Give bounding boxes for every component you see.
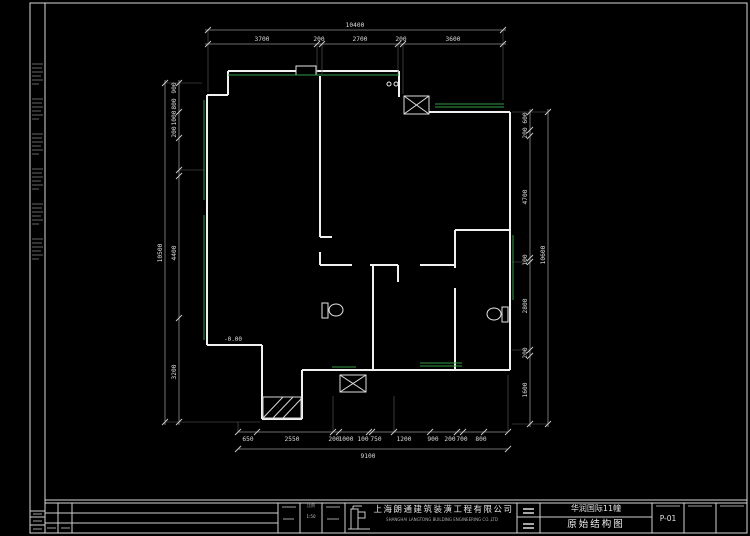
project-name: 华润国际11幢 [540,505,652,514]
dim-label: 200 [171,126,178,137]
dim-label: 4700 [522,189,529,204]
drawing-title: 原始结构图 [540,520,652,530]
window-lines [204,75,513,367]
dim-label: 900 [171,82,178,93]
dim-label: 3600 [446,36,461,43]
dim-label: -0.00 [224,336,242,343]
window-block [296,66,316,75]
dim-label: 2800 [522,298,529,313]
dim-label: 800 [475,436,486,443]
column-dots [387,82,398,86]
drawing-sheet: 3700200270020036001040065025502001000100… [0,0,750,536]
scale-value: 1:50 [300,515,322,519]
dim-label: 10500 [157,243,164,262]
dim-label: 900 [427,436,438,443]
company-name-cn: 上海朗通建筑装潢工程有限公司 [372,506,515,515]
registration-marks [523,509,534,528]
company-logo [348,506,370,529]
dim-label: 100 [357,436,368,443]
dim-label: 4400 [171,245,178,260]
dim-label: 200 [522,127,529,138]
dim-label: 3700 [255,36,270,43]
dim-label: 1000 [171,110,178,125]
dimension-labels: 3700200270020036001040065025502001000100… [157,22,551,460]
dim-label: 10600 [540,245,547,264]
dim-label: 700 [456,436,467,443]
floor-plan-canvas: 3700200270020036001040065025502001000100… [0,0,750,536]
dim-label: 1600 [522,382,529,397]
dim-label: 200 [444,436,455,443]
sheet-number: P-01 [652,515,684,523]
dim-label: 200 [522,347,529,358]
dim-label: 9100 [361,453,376,460]
margin-notes [32,64,43,259]
dim-label: 10400 [346,22,365,29]
dim-label: 1200 [397,436,412,443]
dim-label: 650 [242,436,253,443]
shaft-box-icon [340,96,429,392]
dim-label: 750 [370,436,381,443]
dim-label: 1000 [339,436,354,443]
dim-label: 2700 [353,36,368,43]
entry-steps [263,397,301,418]
dim-label: 3200 [171,364,178,379]
company-name-en: SHANGHAI LANGTONG BUILDING ENGINEERING C… [368,518,516,522]
toilet-icon [322,303,508,322]
dim-label: 800 [171,98,178,109]
floor-plan-walls [207,71,510,419]
scale-label: 比例 [300,504,322,508]
dim-label: 2550 [285,436,300,443]
